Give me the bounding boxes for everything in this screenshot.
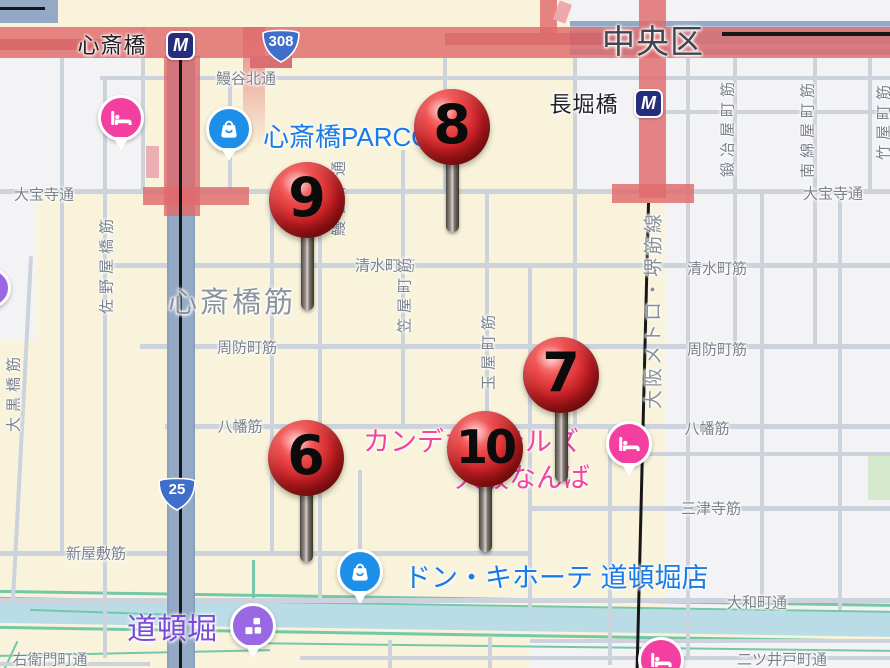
route-shield-25: 25 (156, 477, 198, 512)
poi-label-parco[interactable]: 心斎橋PARCO (263, 117, 432, 154)
street-label-vertical: 笠屋町筋 (394, 253, 415, 333)
osaka-metro-icon[interactable]: M (634, 89, 663, 118)
street-label: 大和町通 (727, 592, 787, 613)
map-pin-9[interactable]: 9 (269, 162, 345, 238)
road (660, 110, 890, 114)
street-label: 二ツ井戸町通 (737, 649, 827, 668)
transit-line-label: 大阪メトロ・堺筋線 (639, 211, 666, 409)
street-label-vertical: 玉屋町筋 (478, 310, 499, 390)
street-label: 清水町筋 (687, 258, 747, 279)
street-label-vertical: 南綿屋町筋 (797, 78, 818, 178)
road (318, 190, 322, 602)
station-crossing (143, 187, 249, 205)
park-area (868, 452, 890, 500)
road (760, 190, 764, 610)
street-label: 右衛門町通 (12, 649, 87, 668)
station-label-shinsaibashi[interactable]: 心斎橋 (77, 28, 146, 60)
street-label-vertical: 鍛冶屋町筋 (717, 77, 738, 177)
road (608, 425, 612, 665)
street-label-vertical: 竹屋町筋 (873, 80, 890, 160)
subway-line (722, 32, 890, 36)
street-label-vertical: 大黒橋筋 (3, 352, 24, 432)
map-canvas[interactable]: 308 25 心斎橋 M 長堀橋 M 中央区 心斎橋筋 道頓堀 鰻谷北通 大宝寺… (0, 0, 890, 668)
city-block (665, 55, 890, 612)
shopping-icon[interactable] (337, 549, 383, 595)
route-number: 25 (156, 481, 198, 498)
road (60, 58, 64, 553)
street-label: 新屋敷筋 (66, 543, 126, 564)
boulevard (0, 0, 58, 23)
road (270, 190, 274, 555)
map-pin-10[interactable]: 10 (447, 411, 523, 487)
midosuji-subway-line (179, 56, 182, 668)
street-label: 八幡筋 (684, 418, 729, 439)
road (530, 639, 890, 643)
station-label-nagahoribashi[interactable]: 長堀橋 (549, 87, 618, 119)
station-structure (146, 146, 159, 178)
dotonbori-label[interactable]: 道頓堀 (127, 604, 217, 648)
landmark-icon[interactable] (230, 603, 276, 649)
ward-label: 中央区 (602, 15, 704, 63)
street-label: 八幡筋 (217, 416, 262, 437)
subway-line (0, 7, 45, 10)
map-pin-7[interactable]: 7 (523, 337, 599, 413)
street-label-vertical: 佐野屋橋筋 (96, 214, 117, 314)
street-label: 三津寺筋 (681, 498, 741, 519)
street-label: 大宝寺通 (14, 184, 74, 205)
shopping-icon[interactable] (206, 106, 252, 152)
road (103, 76, 107, 658)
sakaisuji-crossing (612, 184, 694, 203)
road (0, 189, 890, 194)
city-block (530, 640, 890, 668)
road (640, 452, 890, 456)
major-road-red-stripe (445, 33, 620, 45)
road (100, 263, 890, 268)
hotel-icon[interactable] (98, 95, 144, 141)
street-label: 周防町筋 (217, 337, 277, 358)
street-label: 周防町筋 (687, 339, 747, 360)
poi-label-donki[interactable]: ドン・キホーテ 道頓堀店 (404, 556, 709, 595)
road (388, 640, 392, 668)
shopping-street-label: 心斎橋筋 (168, 279, 296, 321)
map-pin-8[interactable]: 8 (414, 89, 490, 165)
street-label: 鰻谷北通 (216, 68, 276, 89)
street-label: 大宝寺通 (803, 183, 863, 204)
route-number: 308 (260, 33, 302, 50)
osaka-metro-icon[interactable]: M (166, 31, 195, 60)
route-shield-308: 308 (260, 29, 302, 64)
road (488, 636, 492, 668)
hotel-icon[interactable] (606, 421, 652, 467)
road (838, 190, 842, 610)
map-pin-6[interactable]: 6 (268, 420, 344, 496)
